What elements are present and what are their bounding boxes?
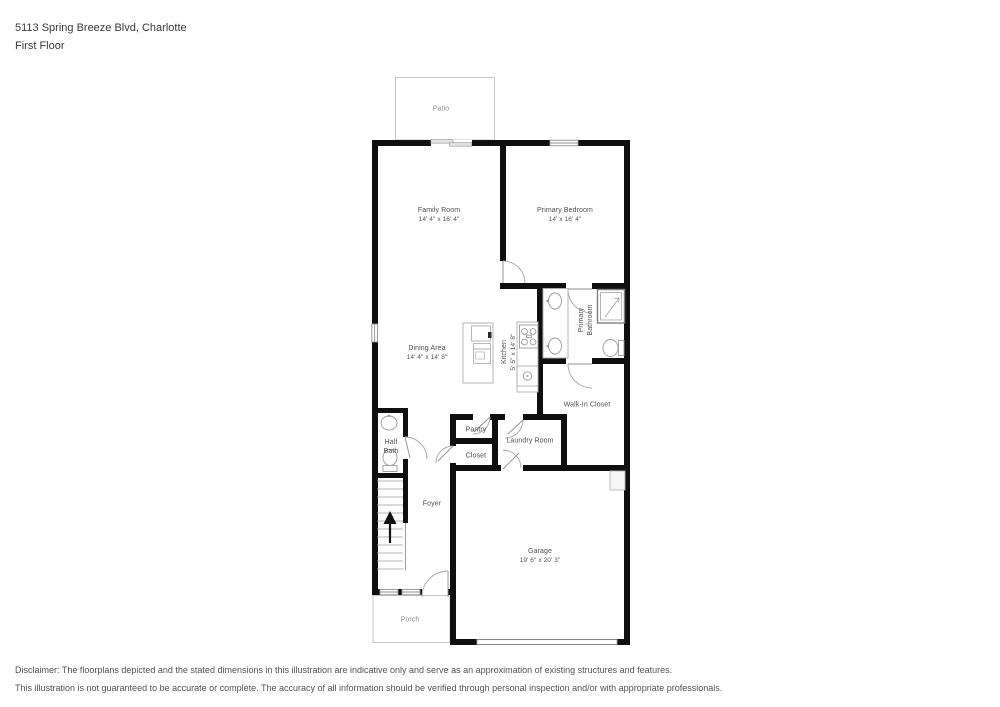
primary-bedroom-label: Primary Bedroom 14' x 16' 4" xyxy=(537,206,593,224)
toilet-icon xyxy=(603,340,624,357)
half-bath-label: Half Bath xyxy=(379,438,403,456)
foyer-label: Foyer xyxy=(423,500,441,509)
walk-in-closet-door-icon xyxy=(568,364,592,388)
disclaimer: Disclaimer: The floorplans depicted and … xyxy=(15,661,722,697)
primary-bedroom-door-icon xyxy=(503,261,525,283)
walk-in-closet-label: Walk-In Closet xyxy=(564,401,611,410)
utility-box xyxy=(610,471,625,490)
kitchen-label: Kitchen 5' 5" x 14' 8" xyxy=(500,333,518,370)
patio-label: Patio xyxy=(433,105,449,114)
family-room-label: Family Room 14' 4" x 16' 4" xyxy=(418,206,460,224)
stairs-up-arrow-icon xyxy=(384,511,397,543)
porch-label: Porch xyxy=(401,616,420,625)
primary-bathroom-label: Primary Bathroom xyxy=(577,299,595,341)
disclaimer-line-2: This illustration is not guaranteed to b… xyxy=(15,679,722,697)
dining-area-label: Dining Area 14' 4" x 14' 8" xyxy=(407,344,448,362)
floorplan-page: 5113 Spring Breeze Blvd, Charlotte First… xyxy=(0,0,1000,707)
garage-label: Garage 19' 6" x 20' 3" xyxy=(520,547,561,565)
pantry-label: Pantry xyxy=(466,426,487,435)
disclaimer-line-1: Disclaimer: The floorplans depicted and … xyxy=(15,661,722,679)
half-bath-sink-icon xyxy=(381,415,397,430)
laundry-door-icon xyxy=(505,420,523,438)
half-bath-door-icon xyxy=(405,437,427,459)
closet-label: Closet xyxy=(466,452,486,461)
bathroom-vanity xyxy=(543,289,568,359)
shower-icon xyxy=(598,290,625,324)
stairs xyxy=(377,481,406,570)
garage-door xyxy=(477,640,617,645)
kitchen-island xyxy=(463,323,493,383)
laundry-room-label: Laundry Room xyxy=(506,437,553,446)
